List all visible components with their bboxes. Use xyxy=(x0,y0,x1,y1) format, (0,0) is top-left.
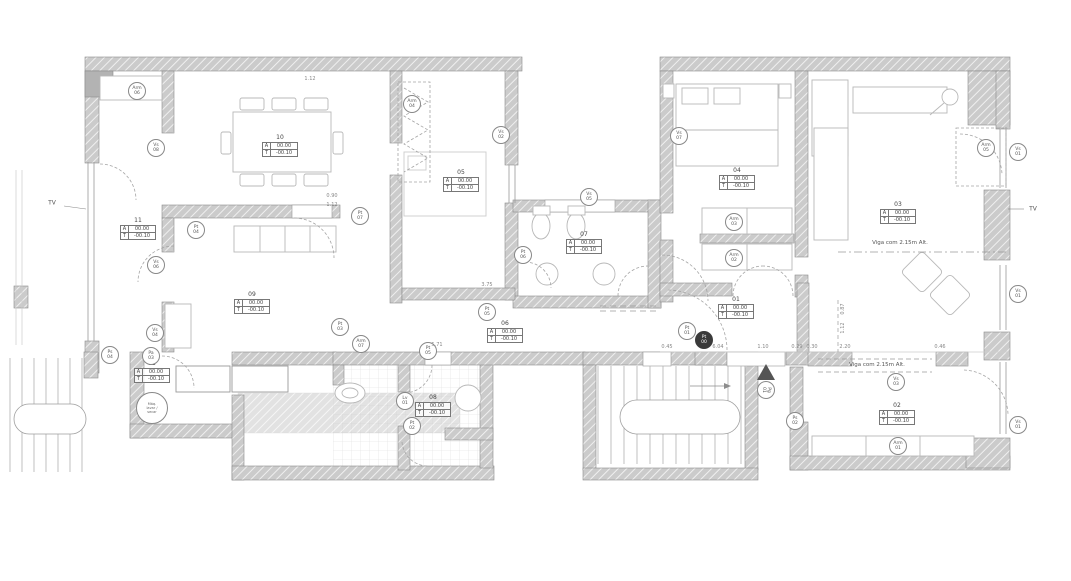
room-label-05: 05 A00.00 T-00.10 xyxy=(437,170,485,192)
room-label-01: 01 A00.00 T-00.10 xyxy=(712,297,760,319)
marker-lv-01: Lv01 xyxy=(396,392,414,410)
marker-arm-01: Arm01 xyxy=(889,437,907,455)
dimension-label: 3.75 xyxy=(481,282,492,288)
dimension-label: 6.04 xyxy=(712,344,723,350)
room-label-07: 07 A00.00 T-00.10 xyxy=(560,232,608,254)
marker-arm-03: Arm03 xyxy=(725,213,743,231)
marker-pt-02: Pt02 xyxy=(403,417,421,435)
room-label-06: 06 A00.00 T-00.10 xyxy=(481,321,529,343)
marker-pa-03: Pa03 xyxy=(142,347,160,365)
marker-vs-01: Vs01 xyxy=(1009,285,1027,303)
marker-arm-07: Arm07 xyxy=(352,335,370,353)
tv-label-right: TV xyxy=(1029,206,1037,213)
room-label-09: 09 A00.00 T-00.10 xyxy=(228,292,276,314)
marker-ps-04: Ps04 xyxy=(101,346,119,364)
dimension-label: 1.12 xyxy=(840,322,846,333)
marker-vs-04: Vs04 xyxy=(146,324,164,342)
dimension-label: 0.46 xyxy=(934,344,945,350)
dimension-label: 1.10 xyxy=(757,344,768,350)
marker-arm-06: Arm06 xyxy=(128,82,146,100)
room-label-08: 08 A00.00 T-00.10 xyxy=(409,395,457,417)
dimension-label: 0.30 xyxy=(806,344,817,350)
marker-vs-01: Vs01 xyxy=(1009,143,1027,161)
marker-vs-08: Vs08 xyxy=(147,139,165,157)
marker-arm-05: Arm05 xyxy=(977,139,995,157)
dimension-label: 0.87 xyxy=(840,303,846,314)
tv-label-left: TV xyxy=(48,200,56,207)
marker-vs-07: Vs07 xyxy=(670,127,688,145)
marker-vs-03: Vs03 xyxy=(887,373,905,391)
beam-note-bedroom: Viga com 2.15m Alt. xyxy=(849,362,905,368)
marker-vs-02: Vs02 xyxy=(492,126,510,144)
marker-arm-02: Arm02 xyxy=(725,249,743,267)
room-label-03: 03 A00.00 T-00.10 xyxy=(874,202,922,224)
room-label-02: 02 A00.00 T-00.10 xyxy=(873,403,921,425)
marker-vs-05: Vs05 xyxy=(580,188,598,206)
marker-ps-02: Ps02 xyxy=(786,412,804,430)
marker-pt-07: Pt07 xyxy=(351,207,369,225)
floor-plan-page: 01 A00.00 T-00.10 02 A00.00 T-00.10 03 A… xyxy=(0,0,1071,581)
dimension-label: 2.20 xyxy=(839,344,850,350)
marker-pt-01: Pt01 xyxy=(678,322,696,340)
marker-pt-06: Pt06 xyxy=(514,246,532,264)
dimension-label: 0.90 xyxy=(326,193,337,199)
dimension-label: 0.29 xyxy=(791,344,802,350)
room-label-11: 11 A00.00 T-00.10 xyxy=(114,218,162,240)
dimension-label: 1.12 xyxy=(326,202,337,208)
room-label-10: 10 A00.00 T-00.10 xyxy=(256,135,304,157)
dimension-label: 0.45 xyxy=(661,344,672,350)
marker-pt-03: Pt03 xyxy=(331,318,349,336)
beam-note-living: Viga com 2.15m Alt. xyxy=(872,240,928,246)
dimension-label: 5.71 xyxy=(431,342,442,348)
marker-vs-01: Vs01 xyxy=(1009,416,1027,434)
washer-dryer-marker: Máq.lavar /secar xyxy=(136,392,168,424)
marker-pt-00-entrance: Pt00 xyxy=(695,331,713,349)
marker-pt-04: Pt04 xyxy=(187,221,205,239)
marker-arm-04: Arm04 xyxy=(403,95,421,113)
dimension-label: 1.12 xyxy=(304,76,315,82)
marker-pt-05: Pt05 xyxy=(478,303,496,321)
marker-pg-01: Pg01 xyxy=(757,381,775,399)
marker-vs-06: Vs06 xyxy=(147,256,165,274)
text-overlay: 01 A00.00 T-00.10 02 A00.00 T-00.10 03 A… xyxy=(0,0,1071,581)
room-label-04: 04 A00.00 T-00.10 xyxy=(713,168,761,190)
